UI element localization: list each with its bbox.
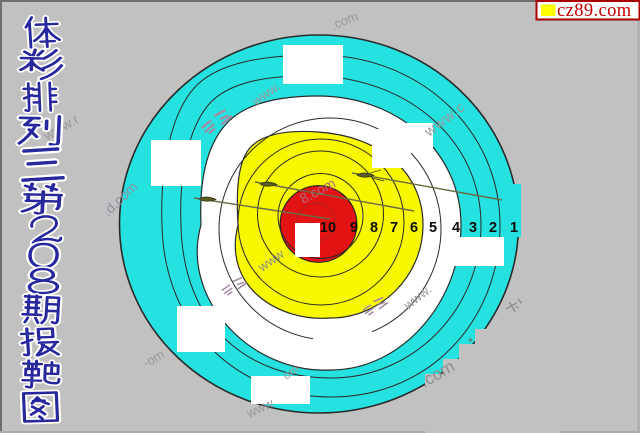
svg-text:8: 8: [370, 220, 378, 236]
svg-text:6: 6: [410, 220, 418, 236]
svg-text:4: 4: [452, 220, 460, 236]
svg-text:3: 3: [469, 220, 477, 236]
svg-text:9: 9: [350, 220, 358, 236]
svg-text:10: 10: [320, 220, 336, 236]
svg-text:1: 1: [510, 220, 518, 236]
svg-text:7: 7: [390, 220, 398, 236]
svg-text:cz89.com: cz89.com: [557, 1, 632, 21]
svg-text:2: 2: [489, 220, 497, 236]
svg-text:5: 5: [429, 220, 437, 236]
